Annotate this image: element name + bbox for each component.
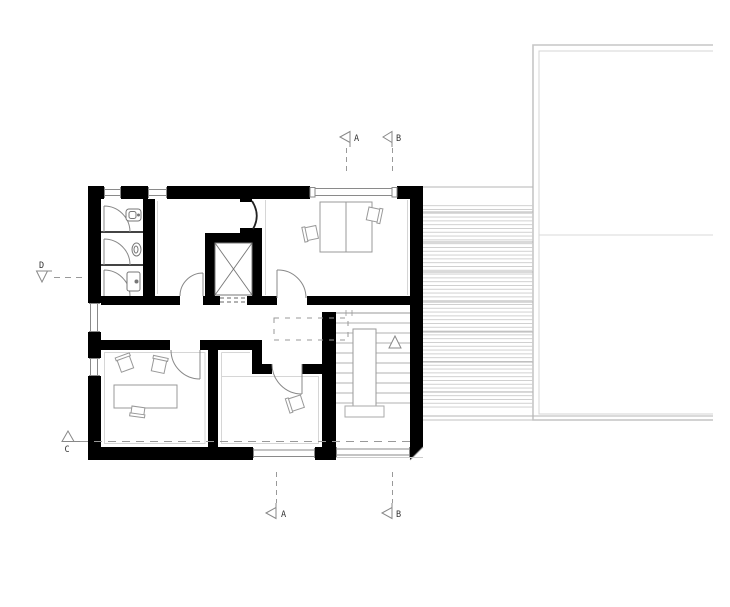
stair-up-arrow-icon	[389, 336, 401, 348]
office-chair	[302, 225, 319, 243]
floor-plan-page: A B A B D C	[0, 0, 730, 607]
stair-landing	[345, 406, 384, 417]
section-marker-d: D	[37, 261, 53, 282]
washbasin-icon	[127, 272, 140, 291]
section-marker-a-bottom: A	[266, 503, 286, 520]
section-marker-b-bottom: B	[382, 503, 401, 520]
neighbor-building-outline	[533, 45, 713, 420]
elevator-door-dashed	[220, 298, 247, 302]
toilet-icon	[126, 209, 141, 221]
meeting-table	[114, 385, 177, 408]
section-marker-c: C	[62, 431, 80, 455]
section-marker-a-top: A	[340, 131, 359, 147]
section-marker-b-top: B	[383, 131, 401, 147]
section-label-a-bottom: A	[281, 510, 286, 520]
section-label-d: D	[39, 261, 44, 271]
section-label-b-top: B	[396, 134, 401, 144]
roof-hatch-area	[423, 187, 713, 420]
section-label-a-top: A	[354, 134, 359, 144]
corridor-dashed-opening	[274, 318, 348, 340]
elevator-shaft	[215, 243, 252, 302]
desk-top-right	[320, 202, 372, 252]
meeting-chair	[115, 353, 134, 373]
wc-fixtures	[126, 209, 141, 291]
office-chair	[285, 394, 304, 413]
section-label-b-bottom: B	[396, 510, 401, 520]
sink-icon	[132, 243, 141, 256]
staircase	[336, 310, 410, 417]
section-label-c: C	[65, 445, 70, 455]
meeting-chair	[130, 406, 146, 418]
stair-void	[353, 329, 376, 406]
meeting-chair	[150, 355, 168, 373]
floor-plan-svg: A B A B D C	[0, 0, 730, 607]
